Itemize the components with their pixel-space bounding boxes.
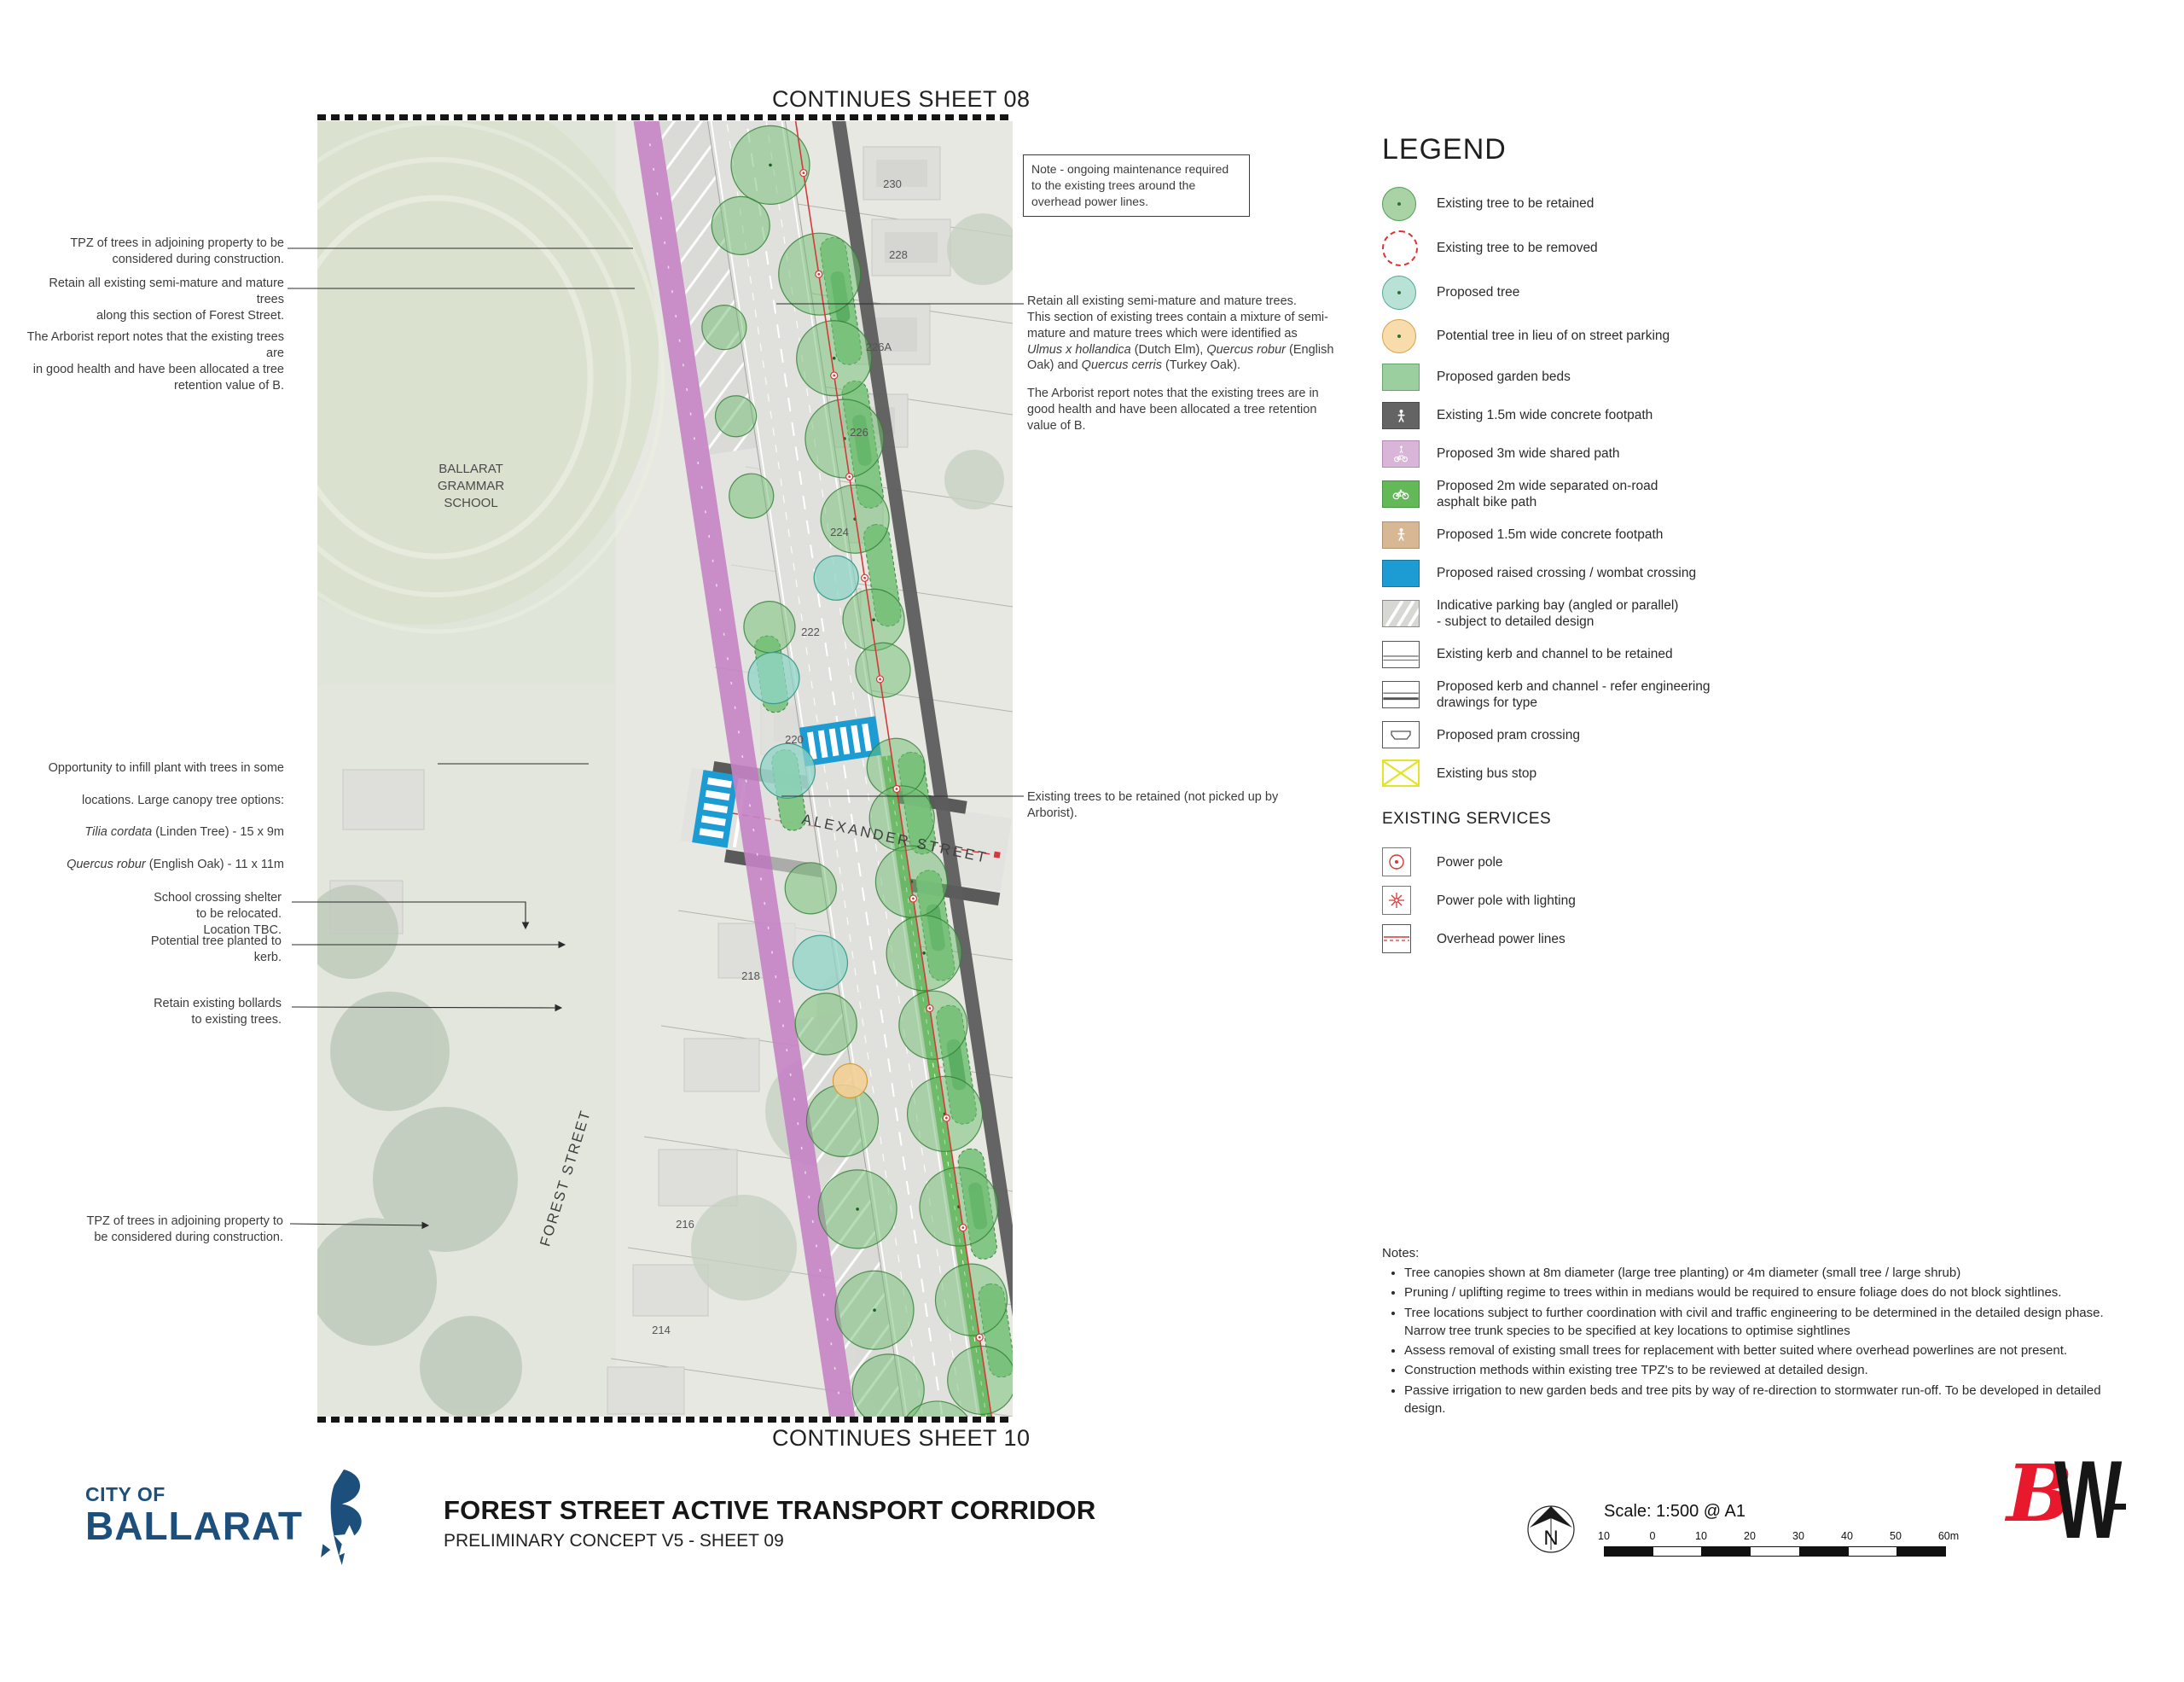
house-number: 222	[801, 626, 820, 638]
annotation-retain-trees: Retain all existing semi-mature and matu…	[26, 276, 284, 324]
house-number: 230	[883, 178, 902, 190]
north-label: N	[1543, 1527, 1558, 1550]
city-of-ballarat-logo: CITY OF BALLARAT	[85, 1483, 303, 1546]
legend-item-power-pole: Power pole	[1382, 847, 1877, 876]
parking-bay-icon	[1382, 600, 1420, 627]
scale-tick: 20	[1744, 1530, 1756, 1542]
note-item: Construction methods within existing tre…	[1404, 1361, 2133, 1379]
scale-tick: 40	[1841, 1530, 1853, 1542]
scale-tick: 0	[1650, 1530, 1656, 1542]
legend-item-tree-proposed: Proposed tree	[1382, 276, 1877, 310]
continues-sheet-08-label: CONTINUES SHEET 08	[772, 86, 1031, 113]
tree-potential-icon	[1382, 319, 1416, 353]
annotation-retain-detail: Retain all existing semi-mature and matu…	[1027, 294, 1334, 434]
svg-text:SCHOOL: SCHOOL	[444, 496, 497, 510]
notes-title: Notes:	[1382, 1246, 2133, 1260]
map-svg: BALLARAT GRAMMAR SCHOOL ALEXANDER STREET…	[317, 121, 1013, 1417]
notes: Notes: Tree canopies shown at 8m diamete…	[1382, 1246, 2133, 1419]
legend-item-power-pole-lighting: Power pole with lighting	[1382, 886, 1877, 915]
scale-tick: 10	[1695, 1530, 1707, 1542]
annotation-arborist: The Arborist report notes that the exist…	[26, 329, 284, 393]
scale-bar	[1604, 1546, 1946, 1557]
note-item: Passive irrigation to new garden beds an…	[1404, 1382, 2133, 1418]
tree-proposed-icon	[1382, 276, 1416, 310]
sheet-subtitle: PRELIMINARY CONCEPT V5 - SHEET 09	[444, 1531, 784, 1551]
bus-stop-icon	[1382, 760, 1420, 787]
sheet-title: FOREST STREET ACTIVE TRANSPORT CORRIDOR	[444, 1495, 1095, 1526]
power-pole-lighting-icon	[1382, 886, 1411, 915]
legend-item-proposed-footpath: Proposed 1.5m wide concrete footpath	[1382, 521, 1877, 550]
legend-item-bike-path: Proposed 2m wide separated on-road aspha…	[1382, 478, 1877, 511]
note-item: Tree locations subject to further coordi…	[1404, 1304, 2133, 1341]
legend-item-bus-stop: Existing bus stop	[1382, 759, 1877, 788]
proposed-footpath-icon	[1382, 521, 1420, 549]
maintenance-note-box: Note - ongoing maintenance required to t…	[1023, 154, 1250, 217]
legend-item-kerb-existing: Existing kerb and channel to be retained	[1382, 640, 1877, 669]
annotation-tpz-bottom: TPZ of trees in adjoining property to be…	[26, 1213, 283, 1246]
map-top-boundary	[317, 114, 1013, 120]
raised-crossing-icon	[1382, 560, 1420, 587]
logo-city-of: CITY OF	[85, 1483, 303, 1506]
bw-logo: B W	[2007, 1449, 2152, 1564]
legend-item-tree-removed: Existing tree to be removed	[1382, 230, 1877, 266]
house-number: 216	[676, 1218, 694, 1231]
note-item: Tree canopies shown at 8m diameter (larg…	[1404, 1264, 2133, 1282]
legend-item-tree-retained: Existing tree to be retained	[1382, 187, 1877, 221]
power-pole-icon	[1382, 847, 1411, 876]
annotation-existing-trees: Existing trees to be retained (not picke…	[1027, 789, 1317, 822]
svg-text:GRAMMAR: GRAMMAR	[438, 479, 505, 493]
house-number: 214	[652, 1324, 671, 1336]
legend-item-garden-beds: Proposed garden beds	[1382, 363, 1877, 392]
scale-tick: 50	[1890, 1530, 1902, 1542]
school-label: BALLARAT	[439, 462, 503, 476]
plan-sheet: CONTINUES SHEET 08 CONTINUES SHEET 10	[0, 0, 2184, 1682]
ballarat-swirl-icon	[314, 1470, 374, 1565]
bw-logo-w: W	[2054, 1444, 2117, 1555]
continues-sheet-10-label: CONTINUES SHEET 10	[772, 1425, 1031, 1452]
house-number: 226	[850, 426, 868, 439]
annotation-shelter: School crossing shelter to be relocated.…	[26, 890, 282, 939]
bike-path-icon	[1382, 480, 1420, 508]
tree-retained-icon	[1382, 187, 1416, 221]
pram-crossing-icon	[1382, 721, 1420, 748]
kerb-existing-icon	[1382, 641, 1420, 668]
logo-ballarat: BALLARAT	[85, 1506, 303, 1546]
house-number: 226A	[866, 340, 892, 353]
overhead-lines-icon	[1382, 924, 1411, 953]
legend-item-pram-crossing: Proposed pram crossing	[1382, 720, 1877, 749]
house-number: 228	[889, 248, 908, 261]
house-number: 220	[785, 733, 804, 746]
scale-tick: 10	[1598, 1530, 1610, 1542]
tree-removed-icon	[1382, 230, 1418, 266]
legend-item-overhead-lines: Overhead power lines	[1382, 924, 1877, 953]
legend-item-parking-bay: Indicative parking bay (angled or parall…	[1382, 597, 1877, 631]
map-bottom-boundary	[317, 1417, 1013, 1423]
legend-title: LEGEND	[1382, 133, 1877, 166]
bw-logo-dash	[2106, 1504, 2126, 1510]
north-arrow: N	[1524, 1499, 1578, 1557]
scale-tick: 30	[1792, 1530, 1804, 1542]
existing-footpath-icon	[1382, 402, 1420, 429]
legend-item-tree-potential: Potential tree in lieu of on street park…	[1382, 319, 1877, 353]
scale-tick: 60m	[1938, 1530, 1959, 1542]
kerb-proposed-icon	[1382, 681, 1420, 708]
annotation-tpz-top: TPZ of trees in adjoining property to be…	[26, 236, 284, 268]
house-number: 218	[741, 969, 760, 982]
existing-services-title: EXISTING SERVICES	[1382, 810, 1877, 829]
legend-item-existing-footpath: Existing 1.5m wide concrete footpath	[1382, 401, 1877, 430]
note-item: Assess removal of existing small trees f…	[1404, 1342, 2133, 1359]
garden-beds-icon	[1382, 364, 1420, 391]
annotation-infill: Opportunity to infill plant with trees i…	[26, 744, 284, 873]
annotation-bollards: Retain existing bollards to existing tre…	[26, 996, 282, 1028]
annotation-kerb-tree: Potential tree planted to kerb.	[26, 934, 282, 966]
house-number: 224	[830, 526, 849, 538]
legend: LEGEND Existing tree to be retained Exis…	[1382, 133, 1877, 963]
legend-item-kerb-proposed: Proposed kerb and channel - refer engine…	[1382, 678, 1877, 712]
scale-text: Scale: 1:500 @ A1	[1604, 1502, 1745, 1522]
legend-item-raised-crossing: Proposed raised crossing / wombat crossi…	[1382, 559, 1877, 588]
shared-path-icon	[1382, 440, 1420, 468]
note-item: Pruning / uplifting regime to trees with…	[1404, 1283, 2133, 1301]
legend-item-shared-path: Proposed 3m wide shared path	[1382, 439, 1877, 469]
